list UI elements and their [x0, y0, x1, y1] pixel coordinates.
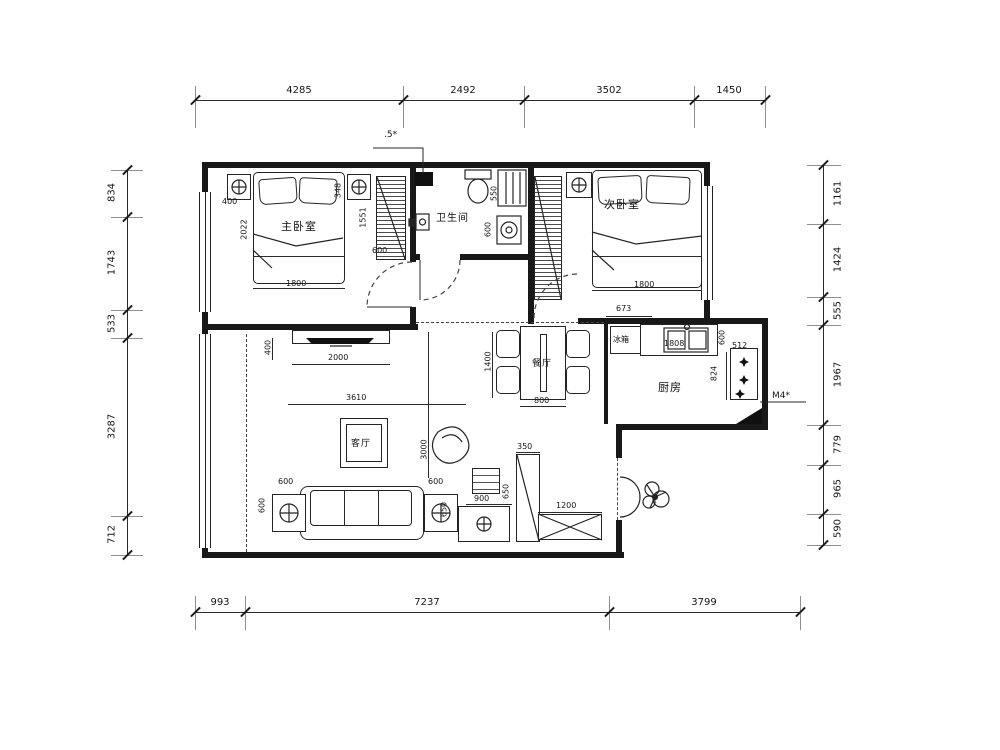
dim-right-5: 779 — [833, 423, 844, 467]
dim-left-1: 834 — [107, 171, 118, 215]
dim-right-7: 590 — [833, 507, 844, 551]
column-kitchen — [736, 408, 762, 424]
dim-right-4: 1967 — [833, 353, 844, 397]
dim-bed1-width: 1800 — [286, 279, 306, 288]
balcony-dashed-line — [246, 334, 247, 552]
dim-tv-depth: 400 — [264, 330, 273, 366]
room-label-dining: 餐厅 — [532, 356, 552, 369]
door-arc-bathroom — [420, 260, 460, 300]
wall-kitchen-half — [604, 324, 608, 424]
wall-kitchen-right — [762, 318, 768, 430]
dim-line-bottom — [195, 612, 800, 613]
entry-cabinet — [458, 506, 510, 542]
dim-line-left — [127, 170, 128, 555]
window-bedroom1-left — [199, 192, 211, 312]
dim-bottom-1: 993 — [210, 597, 229, 608]
inner-dim-line — [606, 316, 652, 317]
inner-dim-line — [592, 290, 702, 291]
inner-dim-line — [538, 512, 602, 513]
dim-top-2: 2492 — [450, 85, 475, 96]
nightstand — [347, 174, 371, 200]
dim-right-6: 965 — [833, 467, 844, 511]
side-table — [272, 494, 306, 532]
dim-left-5: 712 — [107, 513, 118, 557]
label-fridge: 冰箱 — [613, 334, 629, 345]
tv-stand — [292, 330, 390, 344]
bed-foot-line — [592, 256, 702, 257]
inner-dim-line — [726, 352, 727, 400]
room-label-kitchen: 厨房 — [658, 379, 682, 395]
dim-living-width: 3610 — [346, 393, 366, 402]
dining-chair — [496, 366, 520, 394]
entry-opening-dashed — [617, 458, 618, 520]
wall-top — [202, 162, 710, 168]
annotation-top-tag: .5* — [384, 130, 397, 140]
dim-bottom-2: 7237 — [414, 597, 439, 608]
extension-line — [765, 86, 766, 128]
dim-right-2: 1424 — [833, 238, 844, 282]
dim-side-table-r: 600 — [428, 477, 443, 486]
tall-shoe-cabinet — [516, 454, 540, 542]
room-label-living: 客厅 — [351, 436, 371, 449]
stove — [730, 348, 758, 400]
dining-chair — [566, 366, 590, 394]
inner-dim-line — [288, 404, 466, 405]
dim-nightstand: 400 — [222, 197, 237, 206]
dim-side-table-lv: 600 — [258, 488, 267, 524]
floor-plan: 4285 2492 3502 1450 993 7237 3799 834 17… — [0, 0, 1000, 750]
sofa-seat-divider — [344, 490, 345, 526]
room-label-bathroom: 卫生间 — [436, 209, 469, 224]
dim-living-depth: 3000 — [420, 432, 429, 468]
dim-line-top — [195, 100, 765, 101]
inner-dim-line — [520, 406, 566, 407]
dim-dining-width: 800 — [534, 396, 549, 405]
dim-cabinet-900: 900 — [474, 494, 489, 503]
dim-right-1: 1161 — [833, 172, 844, 216]
shoe-rack — [472, 468, 500, 494]
dim-washer-600: 600 — [484, 212, 493, 248]
dim-bath-550: 550 — [490, 176, 499, 212]
wall-bottom — [202, 552, 624, 558]
wall-bath-bottom-b — [460, 254, 534, 260]
nightstand — [566, 172, 592, 198]
dim-left-3: 533 — [107, 302, 118, 346]
entry-bench — [538, 514, 602, 540]
dim-top-1: 4285 — [286, 85, 311, 96]
dim-shoe-350: 350 — [517, 442, 532, 451]
bed-foot-line — [253, 256, 345, 257]
dim-top-4: 1450 — [716, 85, 741, 96]
dim-side-table-rv: 650 — [440, 492, 449, 528]
dim-348: 348 — [334, 173, 343, 209]
extension-line — [195, 86, 196, 128]
dim-cabinet-650: 650 — [502, 474, 511, 510]
shelf-icon — [498, 170, 526, 206]
room-label-bedroom2: 次卧室 — [604, 196, 640, 212]
dim-right-3: 555 — [833, 289, 844, 333]
dim-512: 512 — [732, 341, 747, 350]
corridor-dashed-line — [416, 322, 604, 323]
dim-stove-824: 824 — [710, 356, 719, 392]
wall-bath-bottom-a — [410, 254, 420, 260]
armchair-icon — [432, 427, 468, 463]
room-label-bedroom1: 主卧室 — [281, 218, 317, 234]
washer-icon — [497, 216, 521, 244]
dim-top-3: 3502 — [596, 85, 621, 96]
inner-dim-line — [516, 452, 540, 453]
dim-bed2-width: 1800 — [634, 280, 654, 289]
inner-dim-line — [292, 364, 390, 365]
plant-icon — [643, 482, 669, 508]
sofa-seat-divider — [378, 490, 379, 526]
dim-left-4: 3287 — [107, 405, 118, 449]
dim-sink: 1808 — [664, 339, 684, 348]
extension-line — [694, 86, 695, 128]
dining-chair — [496, 330, 520, 358]
extension-line — [403, 86, 404, 128]
door-arc-bedroom1 — [367, 262, 412, 307]
dim-bed1-length: 2022 — [240, 212, 249, 248]
window-living-left — [199, 334, 211, 548]
dim-left-2: 1743 — [107, 241, 118, 285]
wall-kitchen-bottom — [622, 424, 768, 430]
dim-bench-1200: 1200 — [556, 501, 576, 510]
wardrobe-second — [534, 176, 562, 300]
entry-door-arc — [620, 477, 640, 517]
inner-dim-line — [253, 288, 345, 289]
pillow — [298, 177, 337, 205]
pillow — [645, 175, 690, 205]
sofa-seat — [310, 490, 412, 526]
dim-counter-depth: 600 — [718, 320, 727, 356]
dim-side-table-l: 600 — [278, 477, 293, 486]
dim-wardrobe1-w: 600 — [372, 246, 387, 255]
dim-wardrobe1: 1551 — [359, 200, 368, 236]
dining-chair — [566, 330, 590, 358]
extension-line — [524, 86, 525, 128]
window-bedroom2-right — [701, 186, 713, 300]
dim-dining-length: 1400 — [484, 344, 493, 380]
wall-entry-lower — [616, 520, 622, 558]
dim-bottom-3: 3799 — [691, 597, 716, 608]
dim-673: 673 — [616, 304, 631, 313]
wall-entry-upper — [616, 424, 622, 458]
column-bathroom — [415, 172, 433, 186]
dim-tv-width: 2000 — [328, 353, 348, 362]
toilet-icon — [465, 170, 491, 203]
annotation-right-tag: M4* — [772, 391, 790, 401]
pillow — [258, 177, 298, 206]
